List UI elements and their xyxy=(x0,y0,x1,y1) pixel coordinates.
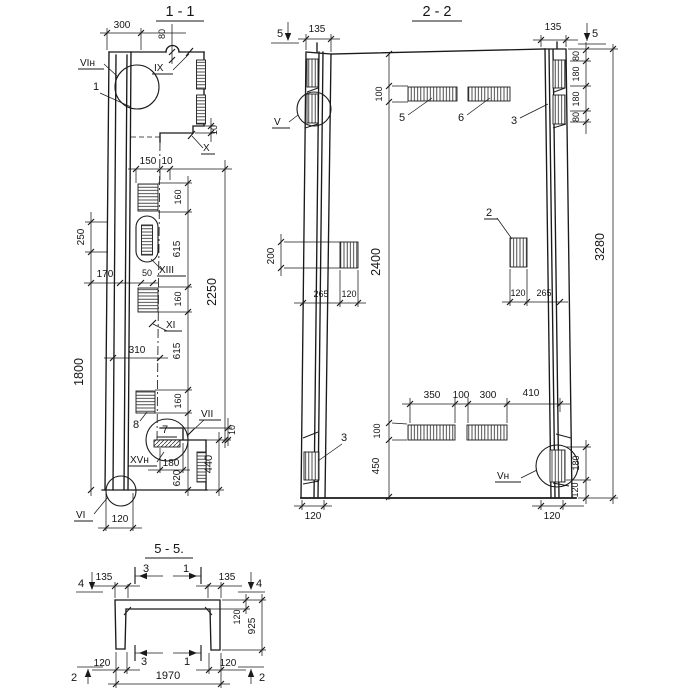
label-part-6: 6 xyxy=(458,112,464,124)
dim-80: 80 xyxy=(571,51,581,61)
label-V: V xyxy=(274,117,281,128)
dim-10: 10 xyxy=(227,425,237,435)
cut-mark-5-left: 5 xyxy=(277,28,283,40)
rib-plate xyxy=(307,94,318,123)
dim-135: 135 xyxy=(219,572,236,583)
rib-plate xyxy=(304,452,319,480)
label-XI: XI xyxy=(166,320,175,331)
cut-arrow-up xyxy=(248,669,254,677)
label-IX: IX xyxy=(154,63,164,74)
dim-160: 160 xyxy=(173,291,183,306)
embed-plate xyxy=(340,242,358,268)
cut-mark-2-left: 2 xyxy=(71,672,77,684)
dim-440: 440 xyxy=(203,455,215,473)
dim-615: 615 xyxy=(172,342,183,359)
callout-circle-vi xyxy=(106,476,136,506)
dimensions-5-5: 135 135 120 925 120 120 1970 xyxy=(76,572,266,688)
dim-180: 180 xyxy=(163,458,180,469)
weld-strip xyxy=(154,440,180,447)
dim-160: 160 xyxy=(173,393,183,408)
rib-plate xyxy=(550,450,565,482)
dim-300: 300 xyxy=(114,20,131,31)
dim-1970: 1970 xyxy=(156,670,180,682)
label-part-3: 3 xyxy=(511,115,517,127)
dim-10: 10 xyxy=(209,125,219,135)
embed-plate xyxy=(136,391,155,413)
dim-120: 120 xyxy=(232,609,242,624)
section-1-1-title: 1 - 1 xyxy=(165,4,194,20)
dim-350: 350 xyxy=(424,390,441,401)
dim-180: 180 xyxy=(571,66,581,81)
label-part-5: 5 xyxy=(399,112,405,124)
dim-410: 410 xyxy=(523,388,540,399)
dim-100: 100 xyxy=(374,86,384,101)
dim-615: 615 xyxy=(172,240,183,257)
dim-120: 120 xyxy=(341,289,356,299)
lifting-loop-core xyxy=(142,225,153,255)
embed-plate xyxy=(138,288,158,312)
rib-plate xyxy=(553,60,565,88)
dim-170: 170 xyxy=(97,269,114,280)
dim-135: 135 xyxy=(96,572,113,583)
dim-200: 200 xyxy=(266,247,277,264)
dim-120: 120 xyxy=(544,511,561,522)
label-VI: VI xyxy=(76,510,85,521)
edge-plate xyxy=(197,95,206,124)
cut-mark-4-left: 4 xyxy=(78,578,84,590)
label-VIn: VIн xyxy=(80,58,95,69)
section-1-1: 1 - 1 xyxy=(72,4,237,531)
dim-1800: 1800 xyxy=(72,358,86,386)
dim-150: 150 xyxy=(140,156,157,167)
dim-135: 135 xyxy=(309,24,326,35)
bar-mark-3-bottom: 3 xyxy=(141,656,147,668)
label-X: X xyxy=(203,143,210,154)
edge-plate xyxy=(197,60,206,89)
label-XIII: XIII xyxy=(159,265,174,276)
label-part-3: 3 xyxy=(341,432,347,444)
dim-80: 80 xyxy=(571,112,581,122)
dim-250: 250 xyxy=(76,228,87,245)
marker-arrow-right xyxy=(189,573,197,579)
embed-plate-2 xyxy=(510,238,527,267)
dim-620: 620 xyxy=(172,469,183,486)
dim-180: 180 xyxy=(571,455,581,470)
dim-10: 10 xyxy=(161,156,173,167)
channel-outline-5-5 xyxy=(115,600,220,650)
dim-265: 265 xyxy=(313,289,328,299)
label-XVn: XVн xyxy=(130,455,149,466)
dim-135: 135 xyxy=(545,22,562,33)
label-Vn: Vн xyxy=(497,471,509,482)
dim-120: 120 xyxy=(570,482,580,497)
dim-160: 160 xyxy=(173,189,183,204)
dim-265: 265 xyxy=(536,288,551,298)
rib-plate xyxy=(307,59,318,87)
cut-arrow-down xyxy=(248,582,254,590)
cut-arrow-down xyxy=(285,33,291,41)
dim-450: 450 xyxy=(371,457,382,474)
label-part-8: 8 xyxy=(133,419,139,431)
dim-2250: 2250 xyxy=(205,278,219,306)
engineering-drawing-page: 1 - 1 xyxy=(0,0,700,700)
cut-arrow-down xyxy=(584,33,590,41)
marker-arrow-right xyxy=(189,650,197,656)
dim-50: 50 xyxy=(142,268,152,278)
technical-drawing-canvas: 1 - 1 xyxy=(0,0,700,700)
section-2-2: 2 - 2 xyxy=(266,4,618,522)
dim-3280: 3280 xyxy=(593,233,607,261)
bar-mark-3-top: 3 xyxy=(143,563,149,575)
dim-120: 120 xyxy=(112,514,129,525)
cut-mark-4-right: 4 xyxy=(256,578,262,590)
dim-120: 120 xyxy=(220,658,237,669)
dim-300: 300 xyxy=(480,390,497,401)
label-part-1: 1 xyxy=(93,81,99,93)
dim-310: 310 xyxy=(129,345,146,356)
dim-2400: 2400 xyxy=(369,248,383,276)
dim-100: 100 xyxy=(372,423,382,438)
embed-plate xyxy=(467,425,507,440)
rib-plate xyxy=(553,95,565,124)
dim-925: 925 xyxy=(247,617,258,634)
embed-plate xyxy=(408,425,455,440)
cut-arrow-up xyxy=(85,669,91,677)
dim-120: 120 xyxy=(94,658,111,669)
label-part-2: 2 xyxy=(486,207,492,219)
section-5-5: 5 - 5. 135 135 120 925 120 120 1970 xyxy=(71,541,266,688)
dim-120: 120 xyxy=(510,288,525,298)
label-VII: VII xyxy=(201,409,213,420)
section-5-5-title: 5 - 5. xyxy=(154,541,184,556)
bar-mark-1-bottom: 1 xyxy=(184,656,190,668)
dim-180: 180 xyxy=(571,91,581,106)
dim-100: 100 xyxy=(453,390,470,401)
embed-plate-5 xyxy=(408,87,457,101)
dim-80: 80 xyxy=(157,29,167,39)
cut-mark-5-right: 5 xyxy=(592,28,598,40)
dim-120: 120 xyxy=(305,511,322,522)
dimensions-1-1: 300 80 10 150 10 250 170 50 160 615 160 … xyxy=(72,20,237,531)
embed-plate xyxy=(138,184,158,211)
embed-plates-2-2 xyxy=(304,59,565,482)
bar-mark-1-top: 1 xyxy=(183,563,189,575)
label-part-7: 7 xyxy=(162,424,168,436)
section-2-2-title: 2 - 2 xyxy=(422,4,451,20)
cut-mark-2-right: 2 xyxy=(259,672,265,684)
